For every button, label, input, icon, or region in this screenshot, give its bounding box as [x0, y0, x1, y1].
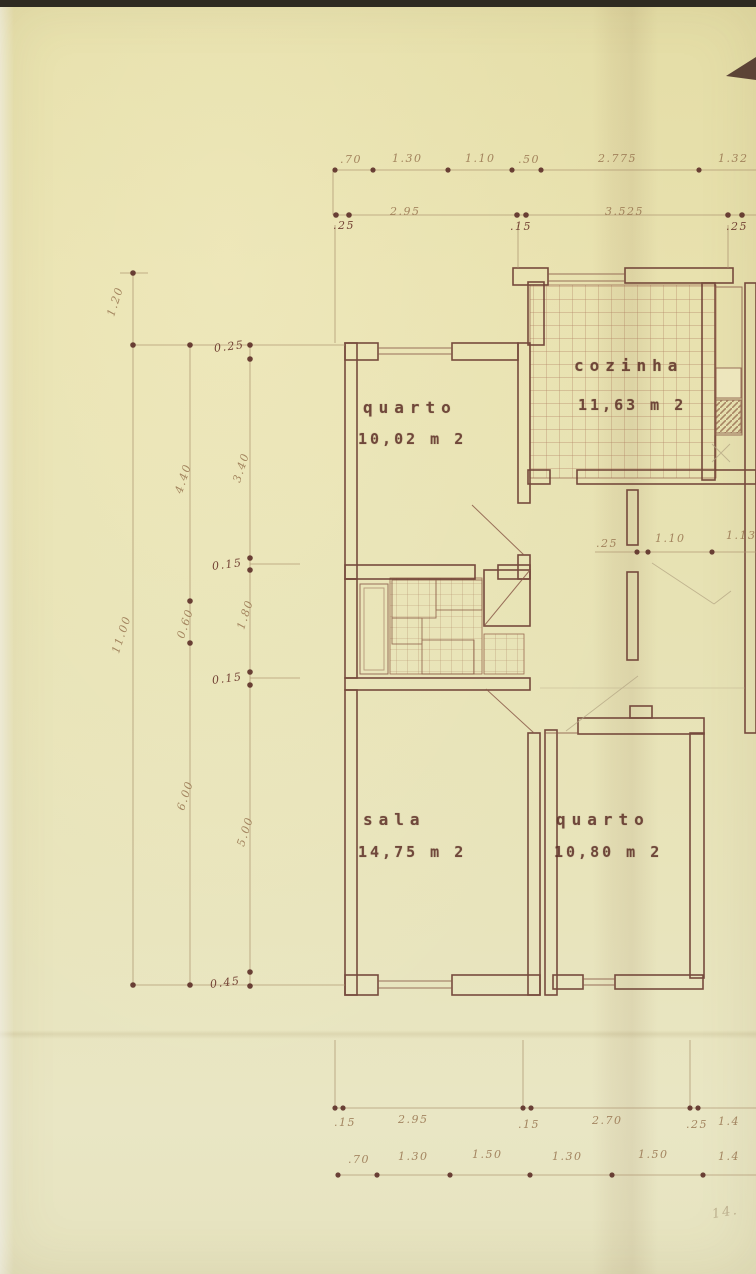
dim-label: .25	[333, 219, 355, 232]
room-label-cozinha: cozinha	[574, 356, 683, 375]
dim-label: .15	[334, 1116, 356, 1129]
dim-label: 1.30	[392, 152, 423, 165]
dim-label: 1.50	[638, 1148, 669, 1161]
dim-label: 3.525	[605, 205, 644, 218]
dim-label: .70	[340, 153, 362, 166]
dim-label: 1.4	[718, 1150, 740, 1163]
dim-label: .15	[518, 1118, 540, 1131]
tile-floors	[390, 285, 716, 674]
dim-label: .25	[726, 220, 748, 233]
dim-label: 1.32	[718, 152, 749, 165]
dim-label: 1.30	[552, 1150, 583, 1163]
torn-corner-wedge	[726, 57, 756, 80]
dim-label: 2.70	[592, 1114, 623, 1127]
dim-label: 2.95	[390, 205, 421, 218]
dim-label: .50	[518, 153, 540, 166]
dim-label: 1.13	[726, 529, 756, 542]
dim-label: .25	[686, 1118, 708, 1131]
dim-label: 2.775	[598, 152, 637, 165]
room-label-quarto2: quarto	[556, 810, 650, 829]
room-label-quarto1: quarto	[363, 398, 457, 417]
dim-label: 1.30	[398, 1150, 429, 1163]
room-label-sala: sala	[363, 810, 426, 829]
dim-label: 1.4	[718, 1115, 740, 1128]
dim-label: .25	[596, 537, 618, 550]
dim-label: .15	[510, 220, 532, 233]
dim-label: 1.50	[472, 1148, 503, 1161]
dim-label: 1.10	[465, 152, 496, 165]
floorplan-scan: quarto 10,02 m 2 cozinha 11,63 m 2 sala …	[0, 0, 756, 1274]
dim-label: 1.10	[655, 532, 686, 545]
pencil-marks	[540, 444, 745, 731]
dim-label: .70	[348, 1153, 370, 1166]
dim-label: 2.95	[398, 1113, 429, 1126]
room-area-quarto2: 10,80 m 2	[554, 843, 662, 861]
room-area-sala: 14,75 m 2	[358, 843, 466, 861]
room-area-quarto1: 10,02 m 2	[358, 430, 466, 448]
room-area-cozinha: 11,63 m 2	[578, 396, 686, 414]
